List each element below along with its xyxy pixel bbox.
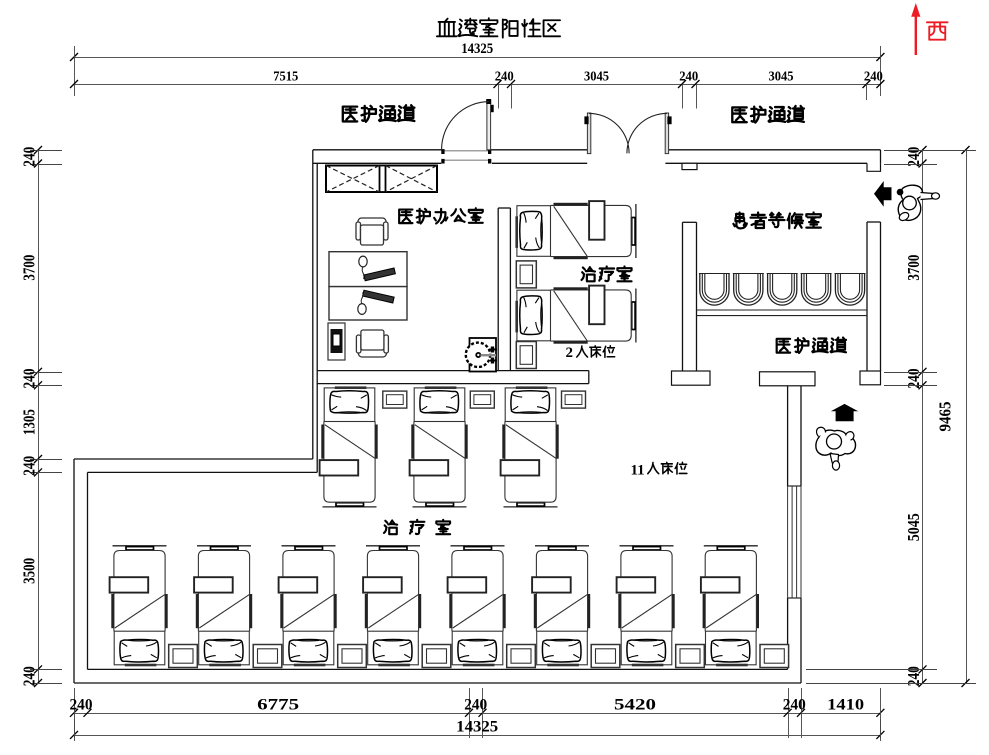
svg-text:3700: 3700: [20, 255, 39, 281]
svg-text:240: 240: [495, 70, 514, 85]
svg-text:6775: 6775: [257, 697, 299, 714]
svg-text:5420: 5420: [614, 697, 656, 714]
svg-text:1305: 1305: [20, 409, 39, 435]
svg-text:240: 240: [783, 697, 806, 714]
svg-text:14325: 14325: [461, 41, 493, 57]
svg-text:240: 240: [864, 70, 883, 85]
svg-text:240: 240: [20, 456, 39, 476]
svg-text:3045: 3045: [769, 70, 794, 85]
svg-text:9465: 9465: [936, 402, 955, 432]
svg-text:240: 240: [20, 147, 39, 167]
svg-text:3500: 3500: [20, 558, 39, 584]
svg-text:3045: 3045: [584, 70, 609, 85]
svg-text:7515: 7515: [273, 70, 298, 85]
svg-text:240: 240: [904, 147, 923, 167]
svg-text:1410: 1410: [827, 697, 864, 714]
svg-text:3700: 3700: [904, 255, 923, 281]
svg-text:240: 240: [70, 697, 93, 714]
svg-text:240: 240: [464, 697, 487, 714]
svg-text:240: 240: [20, 666, 39, 686]
svg-text:14325: 14325: [456, 719, 498, 736]
svg-text:11: 11: [631, 463, 645, 479]
svg-text:5045: 5045: [904, 513, 923, 541]
svg-text:240: 240: [20, 369, 39, 389]
svg-text:2: 2: [566, 345, 574, 361]
svg-text:240: 240: [679, 70, 698, 85]
